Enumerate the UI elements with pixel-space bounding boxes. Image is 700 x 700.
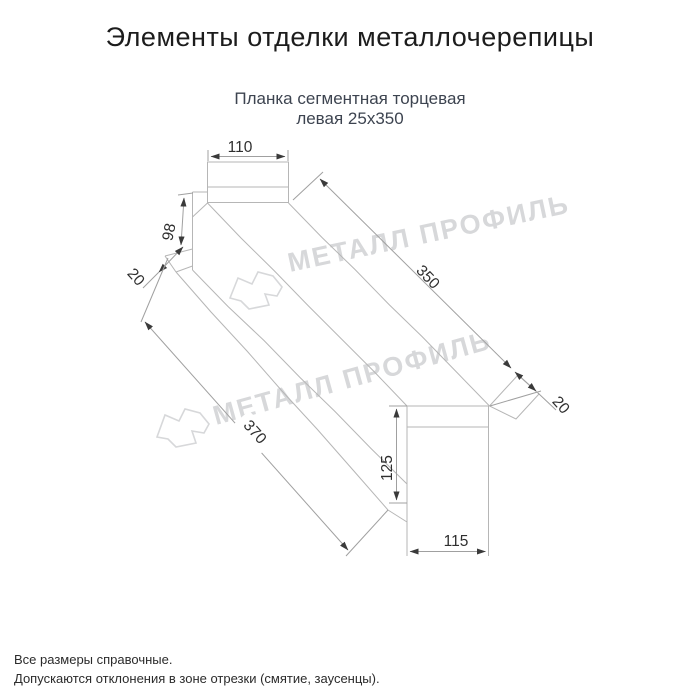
- right-end-flange: [490, 375, 540, 419]
- footer-note-1: Все размеры справочные.: [14, 650, 380, 669]
- footer-notes: Все размеры справочные. Допускаются откл…: [14, 650, 380, 688]
- dim-98: [178, 193, 193, 245]
- dim-label-98: 98: [159, 222, 179, 242]
- dim-label-125: 125: [379, 455, 396, 481]
- metal-profil-logo-icon: [230, 272, 282, 309]
- dim-label-110: 110: [228, 139, 253, 156]
- dim-label-115: 115: [444, 533, 469, 550]
- metal-profil-logo-icon: [157, 409, 209, 447]
- dim-label-20-right: 20: [549, 393, 573, 417]
- watermark-1: МЕТАЛЛ ПРОФИЛЬ: [230, 189, 572, 309]
- technical-drawing: МЕТАЛЛ ПРОФИЛЬ МЕТАЛЛ ПРОФИЛЬ: [0, 0, 700, 700]
- top-end-section: [165, 162, 289, 272]
- dim-label-350: 350: [413, 262, 443, 293]
- watermark-2: МЕТАЛЛ ПРОФИЛЬ: [157, 325, 495, 447]
- footer-note-2: Допускаются отклонения в зоне отрезки (с…: [14, 669, 380, 688]
- dim-20-right: [490, 372, 556, 410]
- dim-125: [389, 406, 407, 503]
- dim-20-left: [141, 247, 183, 322]
- watermark-text: МЕТАЛЛ ПРОФИЛЬ: [285, 189, 572, 278]
